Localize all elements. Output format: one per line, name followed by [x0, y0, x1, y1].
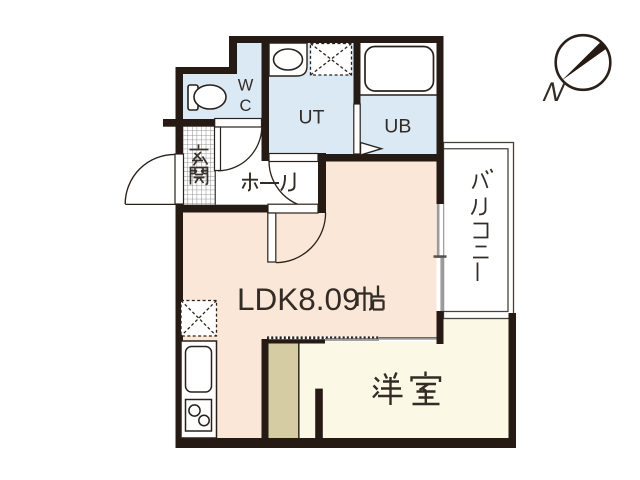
svg-text:W: W	[238, 77, 254, 95]
svg-text:C: C	[240, 97, 252, 115]
svg-text:LDK8.09: LDK8.09	[237, 281, 360, 317]
svg-text:UB: UB	[384, 116, 411, 138]
svg-text:UT: UT	[299, 107, 325, 129]
